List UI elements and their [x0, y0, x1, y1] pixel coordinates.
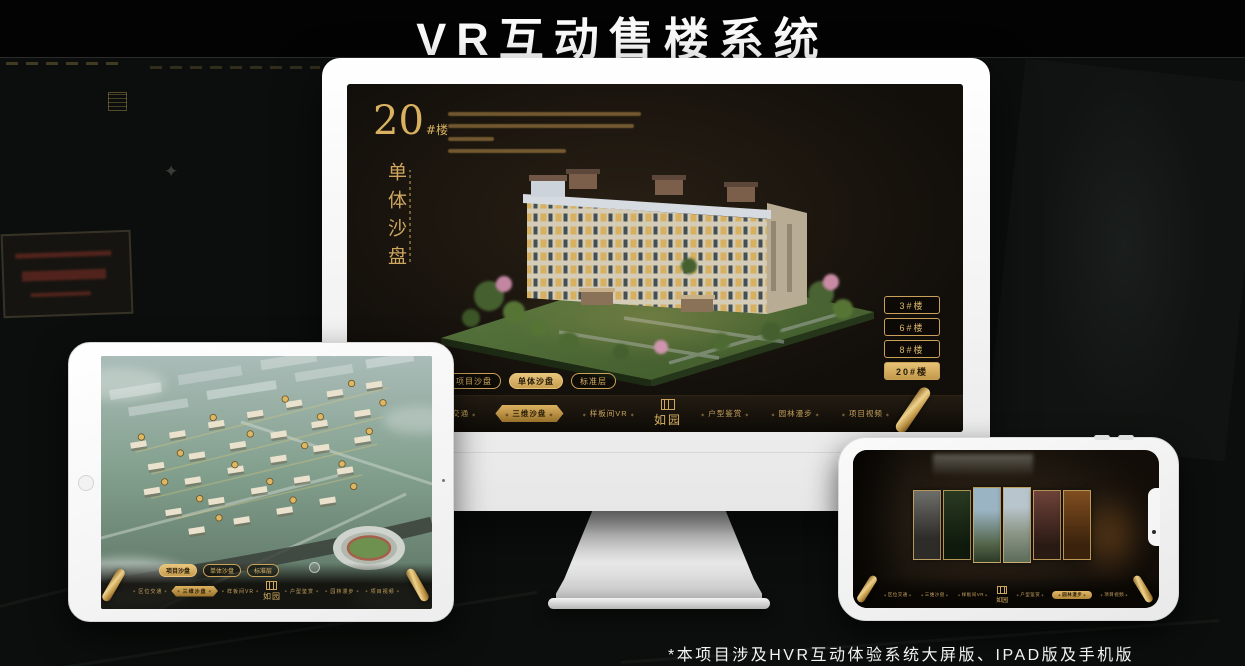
- building-button-active[interactable]: 20#楼: [884, 362, 940, 380]
- nav-showroom-vr[interactable]: 样板间VR: [580, 408, 638, 419]
- nav-3d-sandbox[interactable]: 三维沙盘: [495, 405, 563, 422]
- nav-floorplans[interactable]: 户型鉴赏: [698, 408, 752, 419]
- gallery-panel[interactable]: [1063, 490, 1091, 560]
- ipad-subtabs: 项目沙盘 单体沙盘 标准层: [159, 564, 285, 577]
- nav-floorplans[interactable]: 户型鉴赏: [1015, 592, 1045, 598]
- notch: [1148, 488, 1160, 546]
- seal-icon: [266, 581, 277, 590]
- building-button[interactable]: 8#楼: [884, 340, 940, 358]
- volume-button[interactable]: [1118, 435, 1134, 440]
- monitor-subtabs: 项目沙盘 单体沙盘 标准层: [447, 373, 624, 389]
- block-title: 20#楼: [373, 98, 448, 144]
- seal-icon: [661, 399, 675, 410]
- nav-location[interactable]: 区位交通: [131, 588, 170, 595]
- promo-canvas: ✦ VR互动售楼系统 20#楼 单体沙盘: [0, 0, 1245, 666]
- phone-nav: 区位交通 三维沙盘 样板间VR 如园 户型鉴赏 园林漫步 项目视频: [883, 585, 1129, 605]
- gallery-panel[interactable]: [943, 490, 971, 560]
- nav-project-video[interactable]: 项目视频: [363, 588, 402, 595]
- gallery-panel[interactable]: [1003, 487, 1031, 563]
- gallery-panel[interactable]: [973, 487, 1001, 563]
- brand-logo: 如园: [996, 586, 1008, 604]
- subtab-project-sandbox[interactable]: 项目沙盘: [447, 373, 501, 389]
- nav-showroom-vr[interactable]: 样板间VR: [957, 592, 989, 598]
- bg-plaque: [1, 230, 134, 318]
- nav-floorplans[interactable]: 户型鉴赏: [283, 588, 322, 595]
- nav-location[interactable]: 区位交通: [883, 592, 913, 598]
- phone-device: 区位交通 三维沙盘 样板间VR 如园 户型鉴赏 园林漫步 项目视频: [838, 437, 1179, 621]
- subtab-project-sandbox[interactable]: 项目沙盘: [159, 564, 197, 577]
- building-3d-model[interactable]: �: [419, 146, 889, 386]
- subtab-single-sandbox[interactable]: 单体沙盘: [509, 373, 563, 389]
- monitor-nav: 区位交通 三维沙盘 样板间VR 如园 户型鉴赏 园林漫步 项目视频: [425, 395, 893, 432]
- monitor-stand-base: [548, 598, 770, 609]
- block-number: 20: [373, 98, 424, 144]
- ipad-device: 项目沙盘 单体沙盘 标准层 区位交通 三维沙盘 样板间VR 如园 户型鉴赏 园林…: [68, 342, 454, 622]
- volume-button[interactable]: [1094, 435, 1110, 440]
- camera-icon: [442, 479, 445, 482]
- footnote: *本项目涉及HVR互动体验系统大屏版、IPAD版及手机版: [668, 641, 1134, 665]
- gallery-panel[interactable]: [1033, 490, 1061, 560]
- gallery-panel[interactable]: [913, 490, 941, 560]
- nav-project-video[interactable]: 项目视频: [839, 408, 893, 419]
- subtab-standard-floor[interactable]: 标准层: [247, 564, 279, 577]
- camera-icon: [1152, 530, 1156, 534]
- ceiling-light: [933, 454, 1033, 476]
- block-suffix: #楼: [426, 123, 448, 137]
- bg-compass-star-icon: ✦: [164, 162, 178, 182]
- nav-garden-walk[interactable]: 园林漫步: [1052, 591, 1092, 599]
- phone-screen: 区位交通 三维沙盘 样板间VR 如园 户型鉴赏 园林漫步 项目视频: [853, 450, 1159, 608]
- bg-panel: [986, 58, 1245, 461]
- block-subtitle: 单体沙盘: [383, 162, 410, 274]
- monitor-stand: [556, 509, 762, 601]
- brand-logo: 如园: [263, 581, 281, 602]
- nav-showroom-vr[interactable]: 样板间VR: [220, 588, 262, 595]
- home-button[interactable]: [78, 475, 94, 491]
- bg-river: [980, 70, 1220, 460]
- block-subtitle-en: [409, 170, 411, 262]
- building-button[interactable]: 6#楼: [884, 318, 940, 336]
- subtab-standard-floor[interactable]: 标准层: [571, 373, 616, 389]
- bg-seal-icon: [108, 92, 127, 111]
- compass-icon[interactable]: [309, 562, 320, 573]
- nav-project-video[interactable]: 项目视频: [1099, 592, 1129, 598]
- ipad-screen: 项目沙盘 单体沙盘 标准层 区位交通 三维沙盘 样板间VR 如园 户型鉴赏 园林…: [101, 356, 432, 609]
- seal-icon: [997, 586, 1007, 594]
- brand-logo: 如园: [654, 399, 682, 428]
- nav-garden-walk[interactable]: 园林漫步: [769, 408, 823, 419]
- subtab-single-sandbox[interactable]: 单体沙盘: [203, 564, 241, 577]
- ipad-nav: 区位交通 三维沙盘 样板间VR 如园 户型鉴赏 园林漫步 项目视频: [131, 578, 402, 604]
- nav-3d-sandbox[interactable]: 三维沙盘: [920, 592, 950, 598]
- nav-garden-walk[interactable]: 园林漫步: [323, 588, 362, 595]
- nav-3d-sandbox[interactable]: 三维沙盘: [171, 586, 218, 597]
- building-button[interactable]: 3#楼: [884, 296, 940, 314]
